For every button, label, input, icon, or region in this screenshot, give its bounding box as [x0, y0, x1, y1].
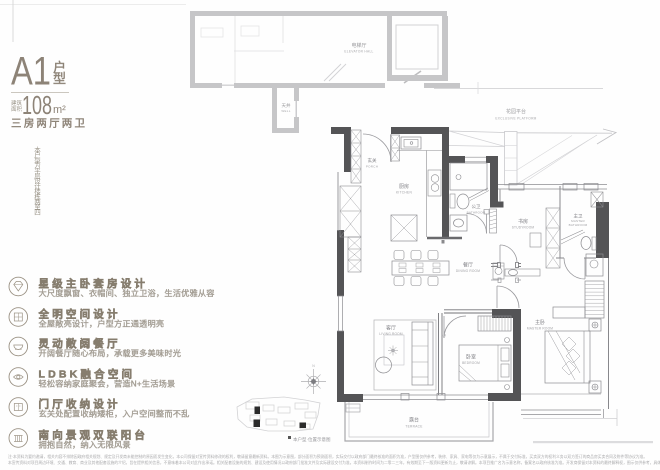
svg-text:型: 型: [53, 71, 66, 86]
svg-text:BATHROOM: BATHROOM: [569, 223, 588, 227]
svg-text:卧室: 卧室: [466, 354, 476, 361]
svg-text:客厅: 客厅: [386, 325, 396, 332]
svg-text:TERRACE: TERRACE: [405, 425, 422, 429]
svg-text:玄关处配置收纳矮柜，入户空间整而不乱: 玄关处配置收纳矮柜，入户空间整而不乱: [39, 409, 190, 419]
svg-text:主卧: 主卧: [535, 319, 545, 326]
svg-text:本户型·位置示意图: 本户型·位置示意图: [293, 436, 331, 443]
svg-text:拥抱自然，纳入无限风景: 拥抱自然，纳入无限风景: [39, 440, 131, 450]
svg-text:建筑: 建筑: [11, 99, 23, 107]
svg-text:A1: A1: [11, 50, 51, 94]
svg-text:餐厅: 餐厅: [463, 262, 473, 269]
svg-text:WELL: WELL: [281, 109, 290, 113]
svg-text:KITCHEN: KITCHEN: [396, 191, 412, 195]
svg-text:厨房: 厨房: [399, 183, 409, 190]
svg-text:注·本资料为要约邀请，相关内容不排除因政府相关规划、规定及开: 注·本资料为要约邀请，相关内容不排除因政府相关规划、规定及开发商未能控制的原因而…: [8, 454, 647, 459]
svg-text:公卫: 公卫: [472, 204, 481, 209]
svg-text:MASTER ROOM: MASTER ROOM: [527, 327, 553, 331]
svg-text:108: 108: [22, 90, 52, 120]
svg-text:书房: 书房: [518, 218, 528, 225]
svg-text:LIVING ROOM: LIVING ROOM: [379, 332, 403, 336]
svg-text:电梯厅: 电梯厅: [351, 42, 366, 49]
svg-text:轻松容纳家庭聚会，营造N+生活场景: 轻松容纳家庭聚会，营造N+生活场景: [39, 379, 176, 389]
svg-text:DINING ROOM: DINING ROOM: [456, 269, 480, 273]
svg-text:花园平台: 花园平台: [506, 108, 526, 115]
svg-text:BEDROOM: BEDROOM: [462, 361, 480, 365]
svg-text:面积: 面积: [11, 106, 23, 113]
svg-text:PORCH: PORCH: [366, 165, 378, 169]
svg-text:全屋敞亮设计，户型方正通透明亮: 全屋敞亮设计，户型方正通透明亮: [39, 319, 165, 329]
svg-text:STUDYROOM: STUDYROOM: [512, 226, 535, 230]
svg-text:开阔餐厅随心布局，承载更多美味时光: 开阔餐厅随心布局，承载更多美味时光: [39, 348, 182, 358]
svg-text:四: 四: [34, 208, 41, 216]
svg-text:天井: 天井: [282, 102, 291, 109]
svg-text:BATHROOM: BATHROOM: [467, 211, 486, 215]
svg-text:本宣传资料对项目周边环境、交通、教育、商业及其他配套设施的介: 本宣传资料对项目周边环境、交通、教育、商业及其他配套设施的介绍，旨在提供相关信息…: [8, 460, 660, 465]
svg-text:EXCLUSIVE PLATFORM: EXCLUSIVE PLATFORM: [495, 117, 536, 121]
svg-text:m²: m²: [53, 104, 66, 116]
svg-text:大尺度飘窗、衣帽间、独立卫浴，生活优雅从容: 大尺度飘窗、衣帽间、独立卫浴，生活优雅从容: [39, 288, 215, 298]
svg-text:玄关: 玄关: [368, 157, 377, 164]
svg-text:三房两厅两卫: 三房两厅两卫: [11, 117, 87, 130]
svg-text:ELEVATOR HALL: ELEVATOR HALL: [344, 50, 373, 54]
svg-text:露台: 露台: [409, 417, 419, 424]
svg-text:主卫: 主卫: [574, 213, 583, 219]
